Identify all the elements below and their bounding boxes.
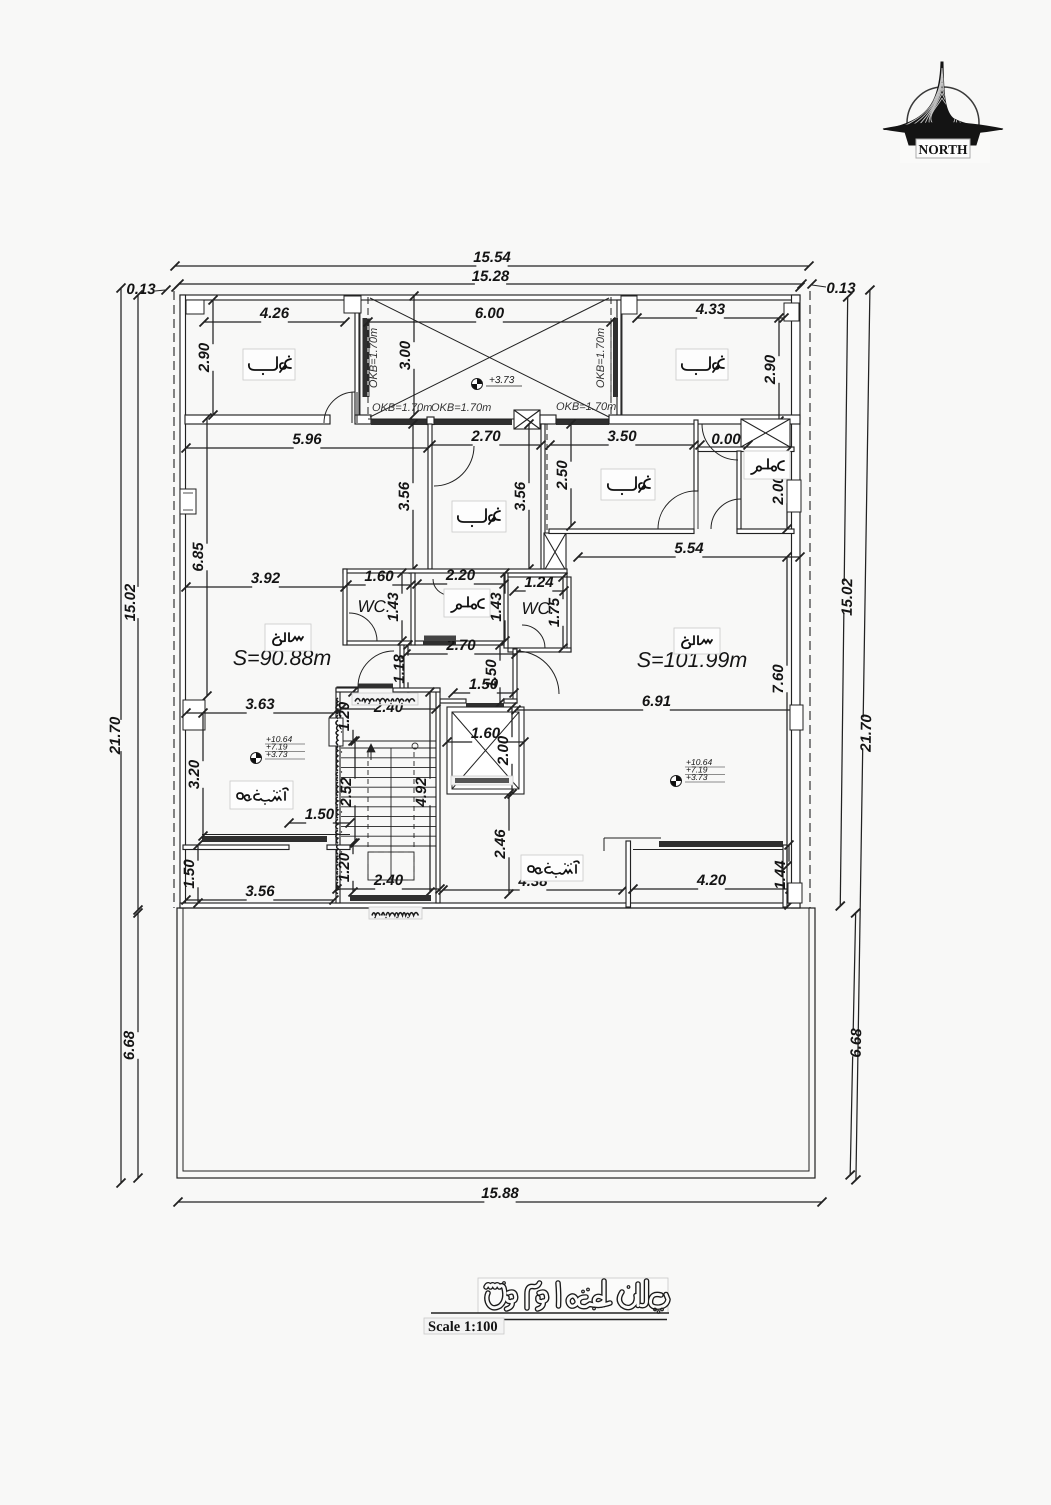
svg-text:NORTH: NORTH bbox=[918, 142, 968, 157]
svg-text:2.50: 2.50 bbox=[554, 460, 571, 491]
svg-text:2.70: 2.70 bbox=[470, 428, 501, 445]
svg-text:1.50: 1.50 bbox=[181, 859, 198, 889]
svg-text:15.02: 15.02 bbox=[122, 583, 139, 621]
svg-text:15.02: 15.02 bbox=[839, 578, 856, 616]
svg-text:1.50: 1.50 bbox=[469, 676, 499, 693]
svg-text:3.56: 3.56 bbox=[396, 481, 413, 511]
svg-text:4.92: 4.92 bbox=[413, 777, 430, 808]
svg-text:OKB=1.70m: OKB=1.70m bbox=[431, 402, 491, 414]
svg-text:WC.: WC. bbox=[521, 599, 554, 618]
svg-text:2.40: 2.40 bbox=[373, 872, 404, 889]
svg-text:3.20: 3.20 bbox=[186, 759, 203, 789]
svg-text:1.24: 1.24 bbox=[524, 574, 554, 591]
svg-text:3.92: 3.92 bbox=[251, 570, 281, 587]
svg-text:2.20: 2.20 bbox=[445, 567, 476, 584]
svg-text:1.20: 1.20 bbox=[336, 852, 353, 882]
svg-text:2.90: 2.90 bbox=[762, 354, 779, 385]
svg-text:OKB=1.70m: OKB=1.70m bbox=[556, 401, 616, 413]
svg-text:2.52: 2.52 bbox=[338, 777, 355, 808]
svg-text:15.28: 15.28 bbox=[472, 268, 510, 285]
svg-text:3.56: 3.56 bbox=[245, 883, 275, 900]
svg-text:WC.: WC. bbox=[357, 597, 390, 616]
svg-text:6.68: 6.68 bbox=[848, 1028, 866, 1058]
svg-text:6.00: 6.00 bbox=[475, 305, 505, 322]
svg-text:15.54: 15.54 bbox=[473, 249, 511, 266]
svg-text:4.33: 4.33 bbox=[695, 301, 726, 318]
svg-text:6.85: 6.85 bbox=[190, 542, 207, 572]
svg-text:1.50: 1.50 bbox=[305, 806, 335, 823]
svg-text:6.91: 6.91 bbox=[642, 693, 671, 710]
svg-text:+3.73: +3.73 bbox=[686, 772, 708, 782]
svg-text:6.68: 6.68 bbox=[121, 1030, 138, 1060]
svg-text:0.13: 0.13 bbox=[126, 281, 156, 298]
svg-text:2.90: 2.90 bbox=[196, 342, 213, 373]
svg-text:15.88: 15.88 bbox=[481, 1185, 519, 1202]
svg-text:1.18: 1.18 bbox=[391, 654, 408, 684]
svg-text:2.46: 2.46 bbox=[492, 829, 509, 860]
svg-text:1.60: 1.60 bbox=[364, 568, 394, 585]
svg-text:5.96: 5.96 bbox=[292, 431, 322, 448]
svg-text:3.63: 3.63 bbox=[245, 696, 275, 713]
svg-text:3.50: 3.50 bbox=[607, 428, 637, 445]
svg-text:OKB=1.70m: OKB=1.70m bbox=[372, 402, 432, 414]
svg-text:4.26: 4.26 bbox=[259, 305, 290, 322]
svg-text:21.70: 21.70 bbox=[107, 716, 124, 755]
svg-text:5.54: 5.54 bbox=[674, 540, 704, 557]
svg-text:3.56: 3.56 bbox=[512, 481, 529, 511]
svg-text:1.43: 1.43 bbox=[488, 592, 505, 622]
svg-text:+3.73: +3.73 bbox=[266, 749, 288, 759]
svg-text:Scale 1:100: Scale 1:100 bbox=[428, 1319, 498, 1335]
svg-text:0.00: 0.00 bbox=[711, 431, 741, 448]
svg-text:0.13: 0.13 bbox=[826, 280, 856, 297]
svg-text:21.70: 21.70 bbox=[858, 713, 876, 752]
svg-text:OKB=1.70m: OKB=1.70m bbox=[368, 328, 380, 388]
svg-text:4.20: 4.20 bbox=[696, 872, 727, 889]
svg-text:2.00: 2.00 bbox=[495, 735, 512, 766]
svg-text:7.60: 7.60 bbox=[770, 664, 787, 694]
svg-text:OKB=1.70m: OKB=1.70m bbox=[595, 328, 607, 388]
svg-text:3.00: 3.00 bbox=[397, 340, 414, 370]
svg-text:+3.73: +3.73 bbox=[489, 375, 515, 386]
